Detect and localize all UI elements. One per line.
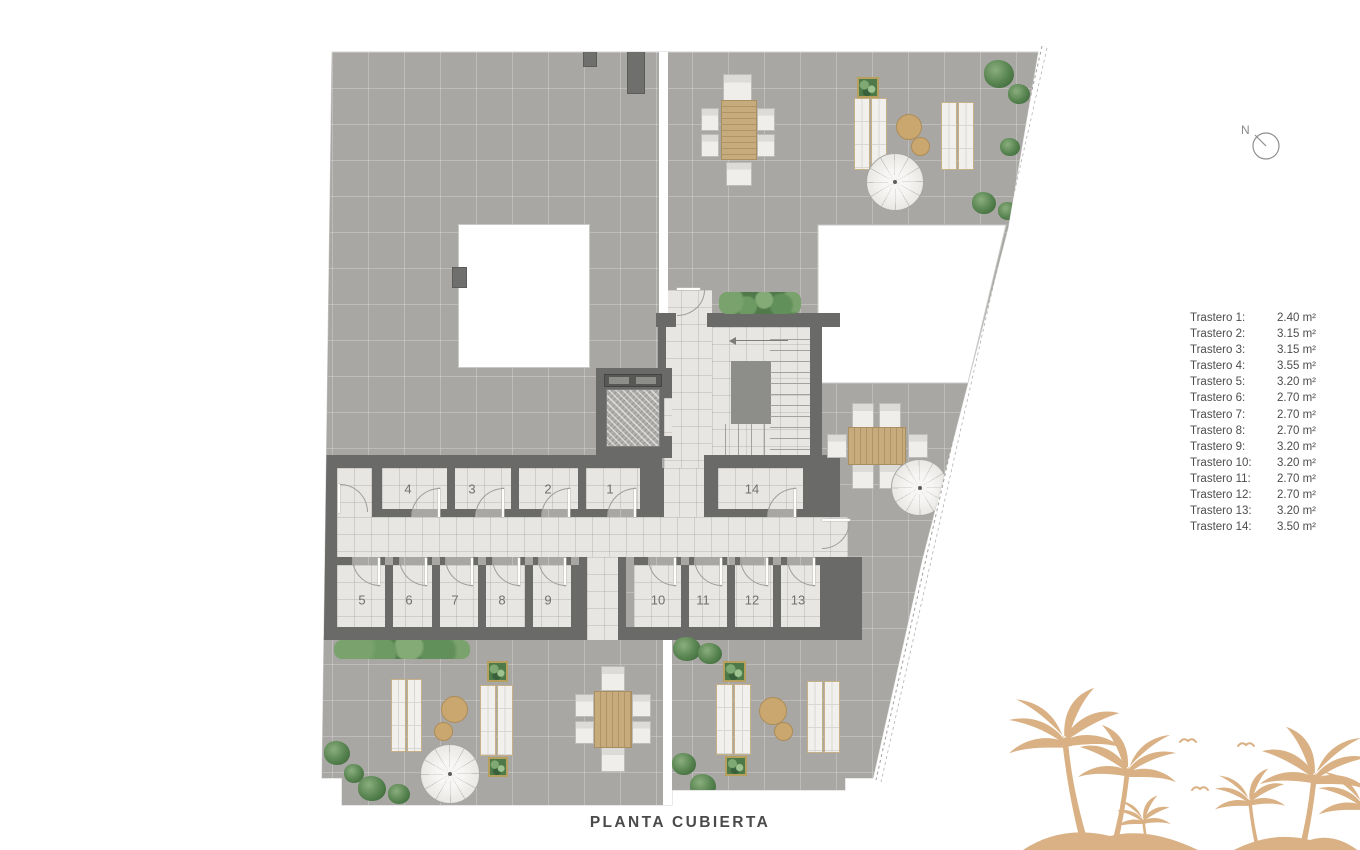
legend-row: Trastero 5:3.20 m² <box>1190 374 1350 390</box>
page-title: PLANTA CUBIERTA <box>590 814 770 832</box>
storage-legend: Trastero 1:2.40 m² Trastero 2:3.15 m² Tr… <box>1190 310 1350 535</box>
room-number-8: 8 <box>498 593 505 608</box>
wall <box>722 557 727 565</box>
chair <box>726 162 752 186</box>
elevator-machinery-icon <box>636 377 656 384</box>
elevator-cabin-icon <box>606 389 660 447</box>
wall <box>385 565 393 627</box>
wall <box>455 509 476 517</box>
wall <box>337 557 352 565</box>
wall <box>727 565 735 627</box>
chair <box>632 694 651 717</box>
wall <box>676 557 681 565</box>
wall <box>382 509 412 517</box>
wall <box>768 557 773 565</box>
wall <box>618 557 626 640</box>
legend-row: Trastero 8:2.70 m² <box>1190 423 1350 439</box>
room-number-9: 9 <box>544 593 551 608</box>
legend-row: Trastero 10:3.20 m² <box>1190 455 1350 471</box>
bush <box>984 60 1014 88</box>
wall <box>681 565 689 627</box>
sun-lounger <box>854 98 870 170</box>
chair <box>575 694 594 717</box>
wall <box>586 509 608 517</box>
stair-treads-icon <box>713 424 770 455</box>
bush <box>1008 84 1030 104</box>
legend-row: Trastero 14:3.50 m² <box>1190 519 1350 535</box>
room-number-12: 12 <box>745 593 759 608</box>
wall <box>803 468 840 517</box>
bush <box>388 784 410 804</box>
elevator-machinery-icon <box>609 377 629 384</box>
chair <box>701 108 719 131</box>
chair <box>723 74 752 101</box>
wall <box>432 565 440 627</box>
palm-trees-decoration <box>980 680 1360 850</box>
planter <box>488 757 508 777</box>
room-number-4: 4 <box>404 482 411 497</box>
legend-row: Trastero 6:2.70 m² <box>1190 390 1350 406</box>
side-table <box>911 137 930 156</box>
bush <box>698 643 722 664</box>
wall <box>640 468 664 517</box>
sun-lounger <box>807 681 823 753</box>
bush <box>972 192 996 214</box>
wall <box>773 565 781 627</box>
chair <box>632 721 651 744</box>
wall <box>323 627 579 640</box>
chair <box>575 721 594 744</box>
wall <box>636 509 640 517</box>
rooftop-vent-icon <box>452 267 467 288</box>
sun-lounger <box>941 102 957 170</box>
wall <box>796 509 803 517</box>
rooftop-vent-icon <box>627 51 645 94</box>
sun-lounger <box>716 684 733 755</box>
hedge <box>334 640 470 659</box>
chair <box>852 464 874 489</box>
sun-lounger <box>480 685 496 756</box>
wall <box>571 565 579 627</box>
wall <box>815 557 820 565</box>
legend-row: Trastero 13:3.20 m² <box>1190 503 1350 519</box>
planter <box>725 756 747 776</box>
sun-lounger <box>734 684 751 755</box>
wall <box>810 327 822 457</box>
sun-lounger <box>824 681 840 753</box>
dining-table <box>594 691 632 748</box>
wall <box>579 557 587 640</box>
bush <box>358 776 386 801</box>
north-label: N <box>1241 123 1250 137</box>
planter-hedge <box>719 292 801 314</box>
chair <box>852 403 874 428</box>
wall <box>504 509 519 517</box>
planter <box>857 77 879 98</box>
wall <box>478 565 486 627</box>
room-number-10: 10 <box>651 593 665 608</box>
side-table <box>774 722 793 741</box>
sun-lounger <box>391 679 406 752</box>
room-number-13: 13 <box>791 593 805 608</box>
room-number-11: 11 <box>696 593 710 608</box>
wall <box>372 468 382 517</box>
dining-table <box>848 427 906 465</box>
wall <box>707 313 840 327</box>
chair <box>757 134 775 157</box>
side-table <box>759 697 787 725</box>
wall <box>440 509 455 517</box>
wall <box>820 557 862 640</box>
chair <box>601 666 625 691</box>
wall <box>570 509 586 517</box>
wall <box>525 565 533 627</box>
chair <box>908 434 928 458</box>
chair <box>757 108 775 131</box>
bush <box>324 741 350 765</box>
stair-void <box>731 361 771 424</box>
stair-arrow-head-icon <box>729 337 736 345</box>
room-number-3: 3 <box>468 482 475 497</box>
sun-lounger <box>407 679 422 752</box>
wall <box>658 327 666 368</box>
chair <box>827 434 847 458</box>
planter <box>723 661 746 682</box>
legend-row: Trastero 11:2.70 m² <box>1190 471 1350 487</box>
side-table <box>896 114 922 140</box>
terrace-separation-top <box>659 52 668 313</box>
room-number-14: 14 <box>745 482 759 497</box>
wall <box>427 557 432 565</box>
stair-direction-arrow-icon <box>736 340 788 341</box>
legend-row: Trastero 1:2.40 m² <box>1190 310 1350 326</box>
wall <box>656 313 676 327</box>
wall <box>520 557 525 565</box>
legend-row: Trastero 9:3.20 m² <box>1190 439 1350 455</box>
chair <box>601 747 625 772</box>
chair <box>701 134 719 157</box>
wall <box>380 557 385 565</box>
room-number-5: 5 <box>358 593 365 608</box>
room-number-1: 1 <box>606 482 613 497</box>
legend-row: Trastero 2:3.15 m² <box>1190 326 1350 342</box>
legend-row: Trastero 7:2.70 m² <box>1190 407 1350 423</box>
sun-lounger <box>958 102 974 170</box>
sun-lounger <box>497 685 513 756</box>
terrace-separation-bottom <box>663 640 672 805</box>
parasol <box>866 153 924 211</box>
wall <box>634 557 648 565</box>
bush <box>673 637 701 661</box>
planter <box>487 661 508 682</box>
chair <box>879 403 901 428</box>
room-number-2: 2 <box>544 482 551 497</box>
wall <box>718 509 768 517</box>
parasol <box>420 744 480 804</box>
north-arrow-icon: N <box>1233 118 1287 166</box>
bush <box>672 753 696 775</box>
stair-treads-icon <box>770 329 810 455</box>
wall <box>473 557 478 565</box>
side-table <box>434 722 453 741</box>
room-number-6: 6 <box>405 593 412 608</box>
legend-row: Trastero 3:3.15 m² <box>1190 342 1350 358</box>
wall <box>704 468 718 517</box>
wall <box>566 557 571 565</box>
legend-row: Trastero 12:2.70 m² <box>1190 487 1350 503</box>
legend-row: Trastero 4:3.55 m² <box>1190 358 1350 374</box>
dining-table <box>721 100 757 160</box>
bush <box>1000 138 1020 156</box>
room-number-7: 7 <box>451 593 458 608</box>
elevator-door-gap <box>664 398 672 436</box>
side-table <box>441 696 468 723</box>
wall <box>519 509 542 517</box>
